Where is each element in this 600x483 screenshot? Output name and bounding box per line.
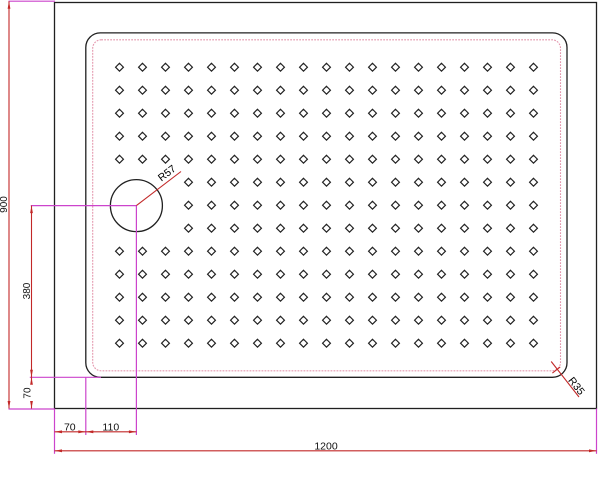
svg-text:1200: 1200 (314, 440, 338, 452)
svg-text:70: 70 (23, 387, 34, 399)
svg-text:70: 70 (64, 421, 76, 433)
svg-text:110: 110 (102, 421, 119, 433)
svg-text:380: 380 (22, 282, 33, 299)
svg-text:900: 900 (0, 196, 10, 213)
